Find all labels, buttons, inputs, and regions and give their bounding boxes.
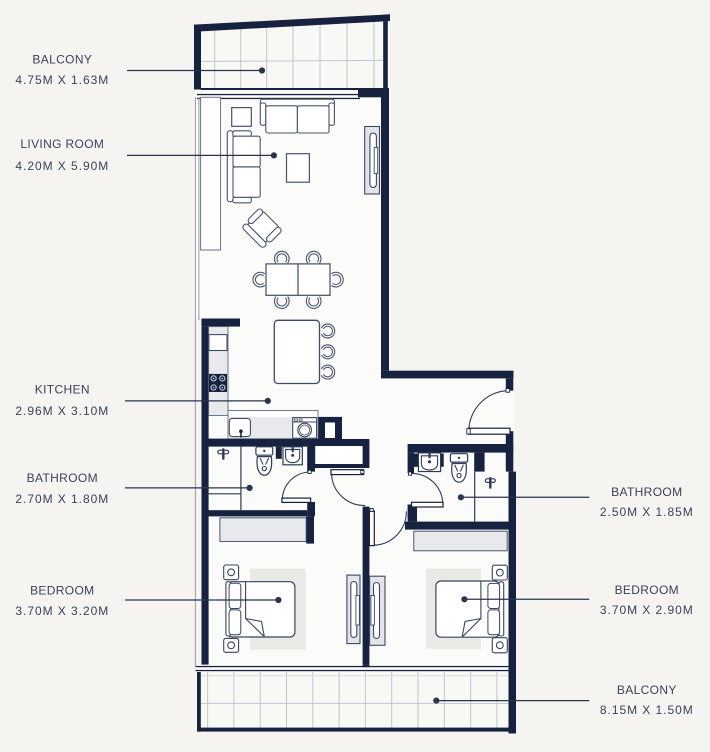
svg-text:2.96M X 3.10M: 2.96M X 3.10M bbox=[15, 404, 109, 418]
svg-text:BEDROOM: BEDROOM bbox=[30, 584, 94, 598]
svg-text:BALCONY: BALCONY bbox=[617, 683, 677, 697]
svg-text:KITCHEN: KITCHEN bbox=[35, 382, 90, 396]
svg-text:3.70M X 2.90M: 3.70M X 2.90M bbox=[600, 603, 694, 617]
svg-text:2.70M X 1.80M: 2.70M X 1.80M bbox=[15, 492, 109, 506]
svg-text:BATHROOM: BATHROOM bbox=[27, 471, 98, 485]
svg-text:BALCONY: BALCONY bbox=[32, 52, 92, 66]
svg-text:2.50M X 1.85M: 2.50M X 1.85M bbox=[600, 505, 694, 519]
svg-text:4.75M X 1.63M: 4.75M X 1.63M bbox=[15, 73, 109, 87]
svg-text:8.15M X 1.50M: 8.15M X 1.50M bbox=[600, 703, 694, 717]
svg-text:BEDROOM: BEDROOM bbox=[615, 583, 679, 597]
svg-text:LIVING ROOM: LIVING ROOM bbox=[20, 137, 104, 151]
svg-text:4.20M X 5.90M: 4.20M X 5.90M bbox=[15, 159, 109, 173]
svg-text:3.70M X 3.20M: 3.70M X 3.20M bbox=[15, 604, 109, 618]
svg-text:BATHROOM: BATHROOM bbox=[611, 485, 682, 499]
